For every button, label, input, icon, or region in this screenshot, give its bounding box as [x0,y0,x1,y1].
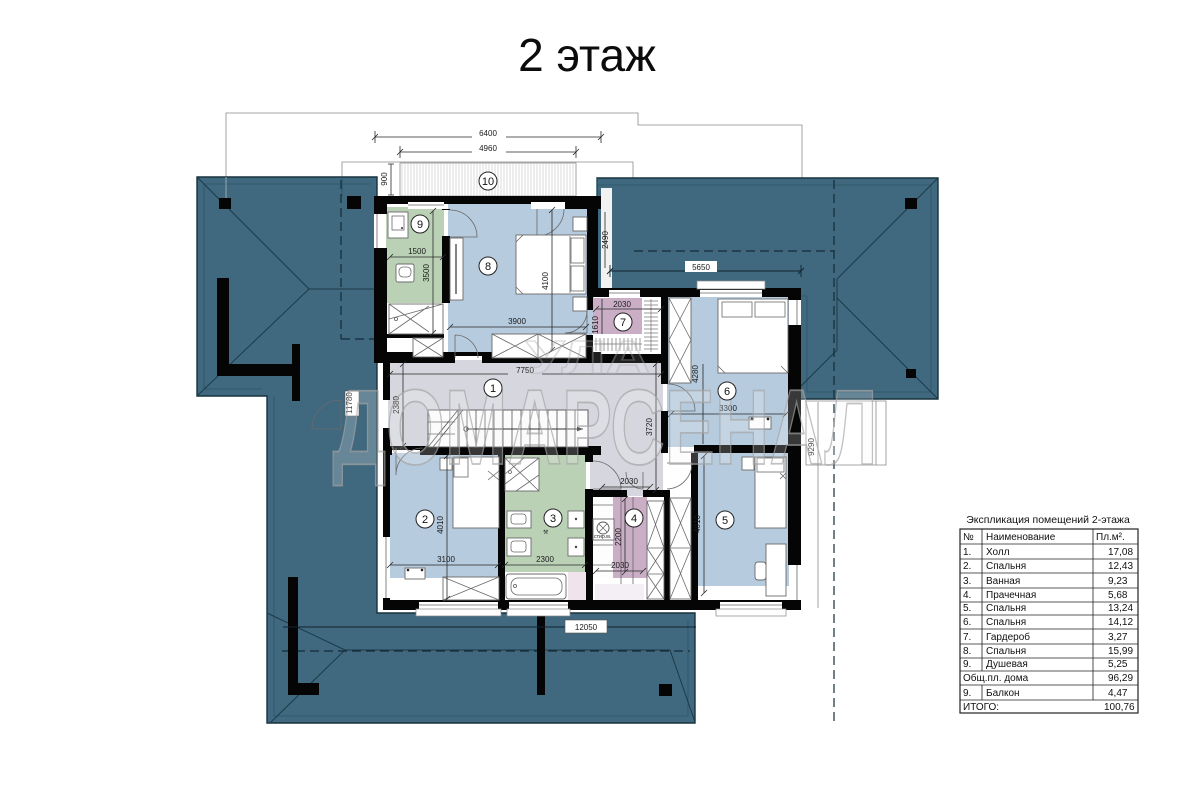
svg-text:Балкон: Балкон [986,688,1020,699]
svg-text:5.: 5. [963,603,971,614]
svg-text:9,23: 9,23 [1108,576,1128,587]
svg-text:ДОМАРСЕНАЛ: ДОМАРСЕНАЛ [333,367,878,487]
svg-text:5: 5 [722,515,728,527]
svg-text:12050: 12050 [575,623,598,632]
svg-text:4960: 4960 [479,144,497,153]
svg-text:Пл.м².: Пл.м². [1096,532,1125,543]
svg-text:15,99: 15,99 [1108,646,1133,657]
svg-text:2490: 2490 [601,231,610,249]
svg-text:2 этаж: 2 этаж [518,29,656,81]
svg-text:8: 8 [485,261,491,273]
svg-text:3500: 3500 [422,264,431,282]
svg-text:2: 2 [422,514,428,526]
svg-text:стир.м.: стир.м. [594,534,611,540]
svg-text:3,27: 3,27 [1108,632,1128,643]
svg-text:Общ.пл. дома: Общ.пл. дома [963,672,1029,684]
svg-text:1: 1 [490,383,496,395]
svg-text:3900: 3900 [508,317,526,326]
svg-text:4.: 4. [963,590,971,601]
svg-text:5,25: 5,25 [1108,659,1128,670]
svg-text:№: № [963,532,974,543]
svg-text:2030: 2030 [613,300,631,309]
svg-text:Экспликация помещений 2-этажа: Экспликация помещений 2-этажа [966,514,1130,526]
svg-text:Спальня: Спальня [986,561,1026,572]
svg-text:8.: 8. [963,646,971,657]
svg-text:3.: 3. [963,576,971,587]
svg-text:4100: 4100 [541,272,550,290]
svg-text:14,12: 14,12 [1108,617,1133,628]
svg-text:Спальня: Спальня [986,646,1026,657]
svg-text:17,08: 17,08 [1108,547,1133,558]
svg-text:1.: 1. [963,547,971,558]
svg-text:13,24: 13,24 [1108,603,1133,614]
svg-text:900: 900 [380,172,389,186]
svg-text:6400: 6400 [479,129,497,138]
svg-text:9: 9 [417,219,423,231]
svg-text:2.: 2. [963,561,971,572]
svg-text:4010: 4010 [693,515,702,533]
svg-text:100,76: 100,76 [1104,702,1135,713]
svg-text:1500: 1500 [408,247,426,256]
svg-text:3100: 3100 [437,555,455,564]
svg-text:2300: 2300 [536,555,554,564]
svg-text:7.: 7. [963,632,971,643]
svg-text:Гардероб: Гардероб [986,631,1030,643]
svg-text:10: 10 [482,176,494,188]
svg-text:7: 7 [620,317,626,329]
svg-text:6: 6 [724,386,730,398]
svg-text:Холл: Холл [986,547,1010,558]
svg-text:6.: 6. [963,617,971,628]
svg-text:4: 4 [631,513,637,525]
svg-text:Спальня: Спальня [986,603,1026,614]
svg-text:5,68: 5,68 [1108,590,1128,601]
svg-text:2030: 2030 [611,561,629,570]
svg-text:5650: 5650 [692,263,710,272]
svg-text:3: 3 [550,513,556,525]
svg-text:4,47: 4,47 [1108,688,1128,699]
svg-text:Душевая: Душевая [986,659,1028,670]
svg-text:4010: 4010 [436,516,445,534]
svg-text:Спальня: Спальня [986,617,1026,628]
svg-text:УЛА: УЛА [526,331,651,383]
svg-text:9.: 9. [963,688,971,699]
svg-text:12,43: 12,43 [1108,561,1133,572]
svg-text:Ванная: Ванная [986,576,1020,587]
svg-text:Прачечная: Прачечная [986,590,1036,601]
svg-text:⚒: ⚒ [543,529,549,536]
svg-text:Наименование: Наименование [986,532,1056,543]
svg-text:ИТОГО:: ИТОГО: [963,702,999,713]
svg-text:2200: 2200 [614,528,623,546]
svg-text:9.: 9. [963,659,971,670]
svg-text:96,29: 96,29 [1108,673,1133,684]
